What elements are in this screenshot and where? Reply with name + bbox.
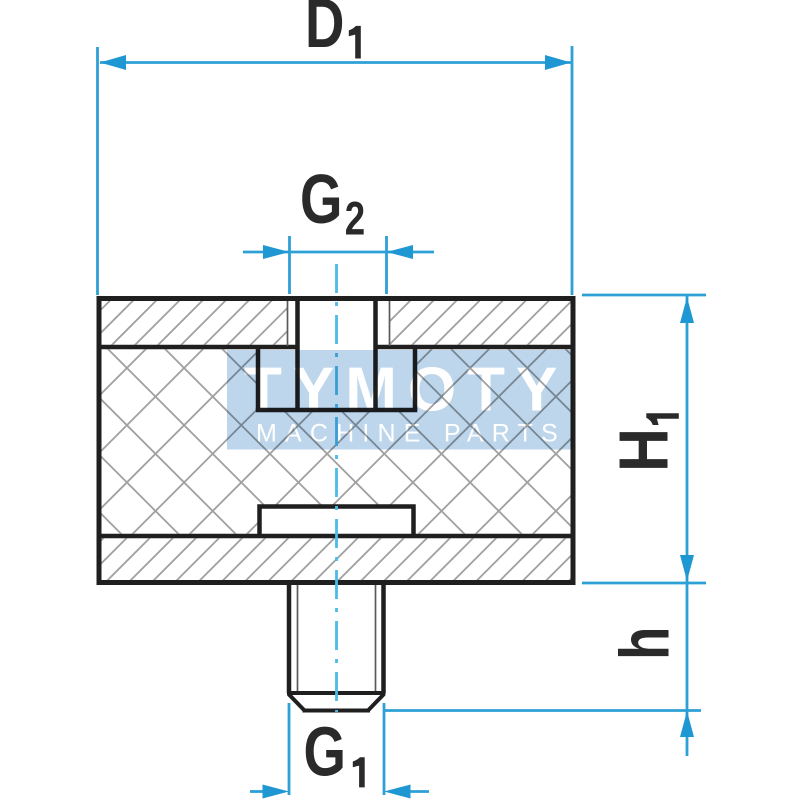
svg-text:TYMOTY: TYMOTY bbox=[244, 356, 568, 425]
svg-text:H: H bbox=[605, 428, 683, 472]
svg-text:h: h bbox=[606, 627, 684, 660]
svg-text:MACHINE PARTS: MACHINE PARTS bbox=[256, 420, 566, 448]
svg-text:G: G bbox=[304, 713, 346, 791]
svg-text:D: D bbox=[305, 0, 344, 63]
